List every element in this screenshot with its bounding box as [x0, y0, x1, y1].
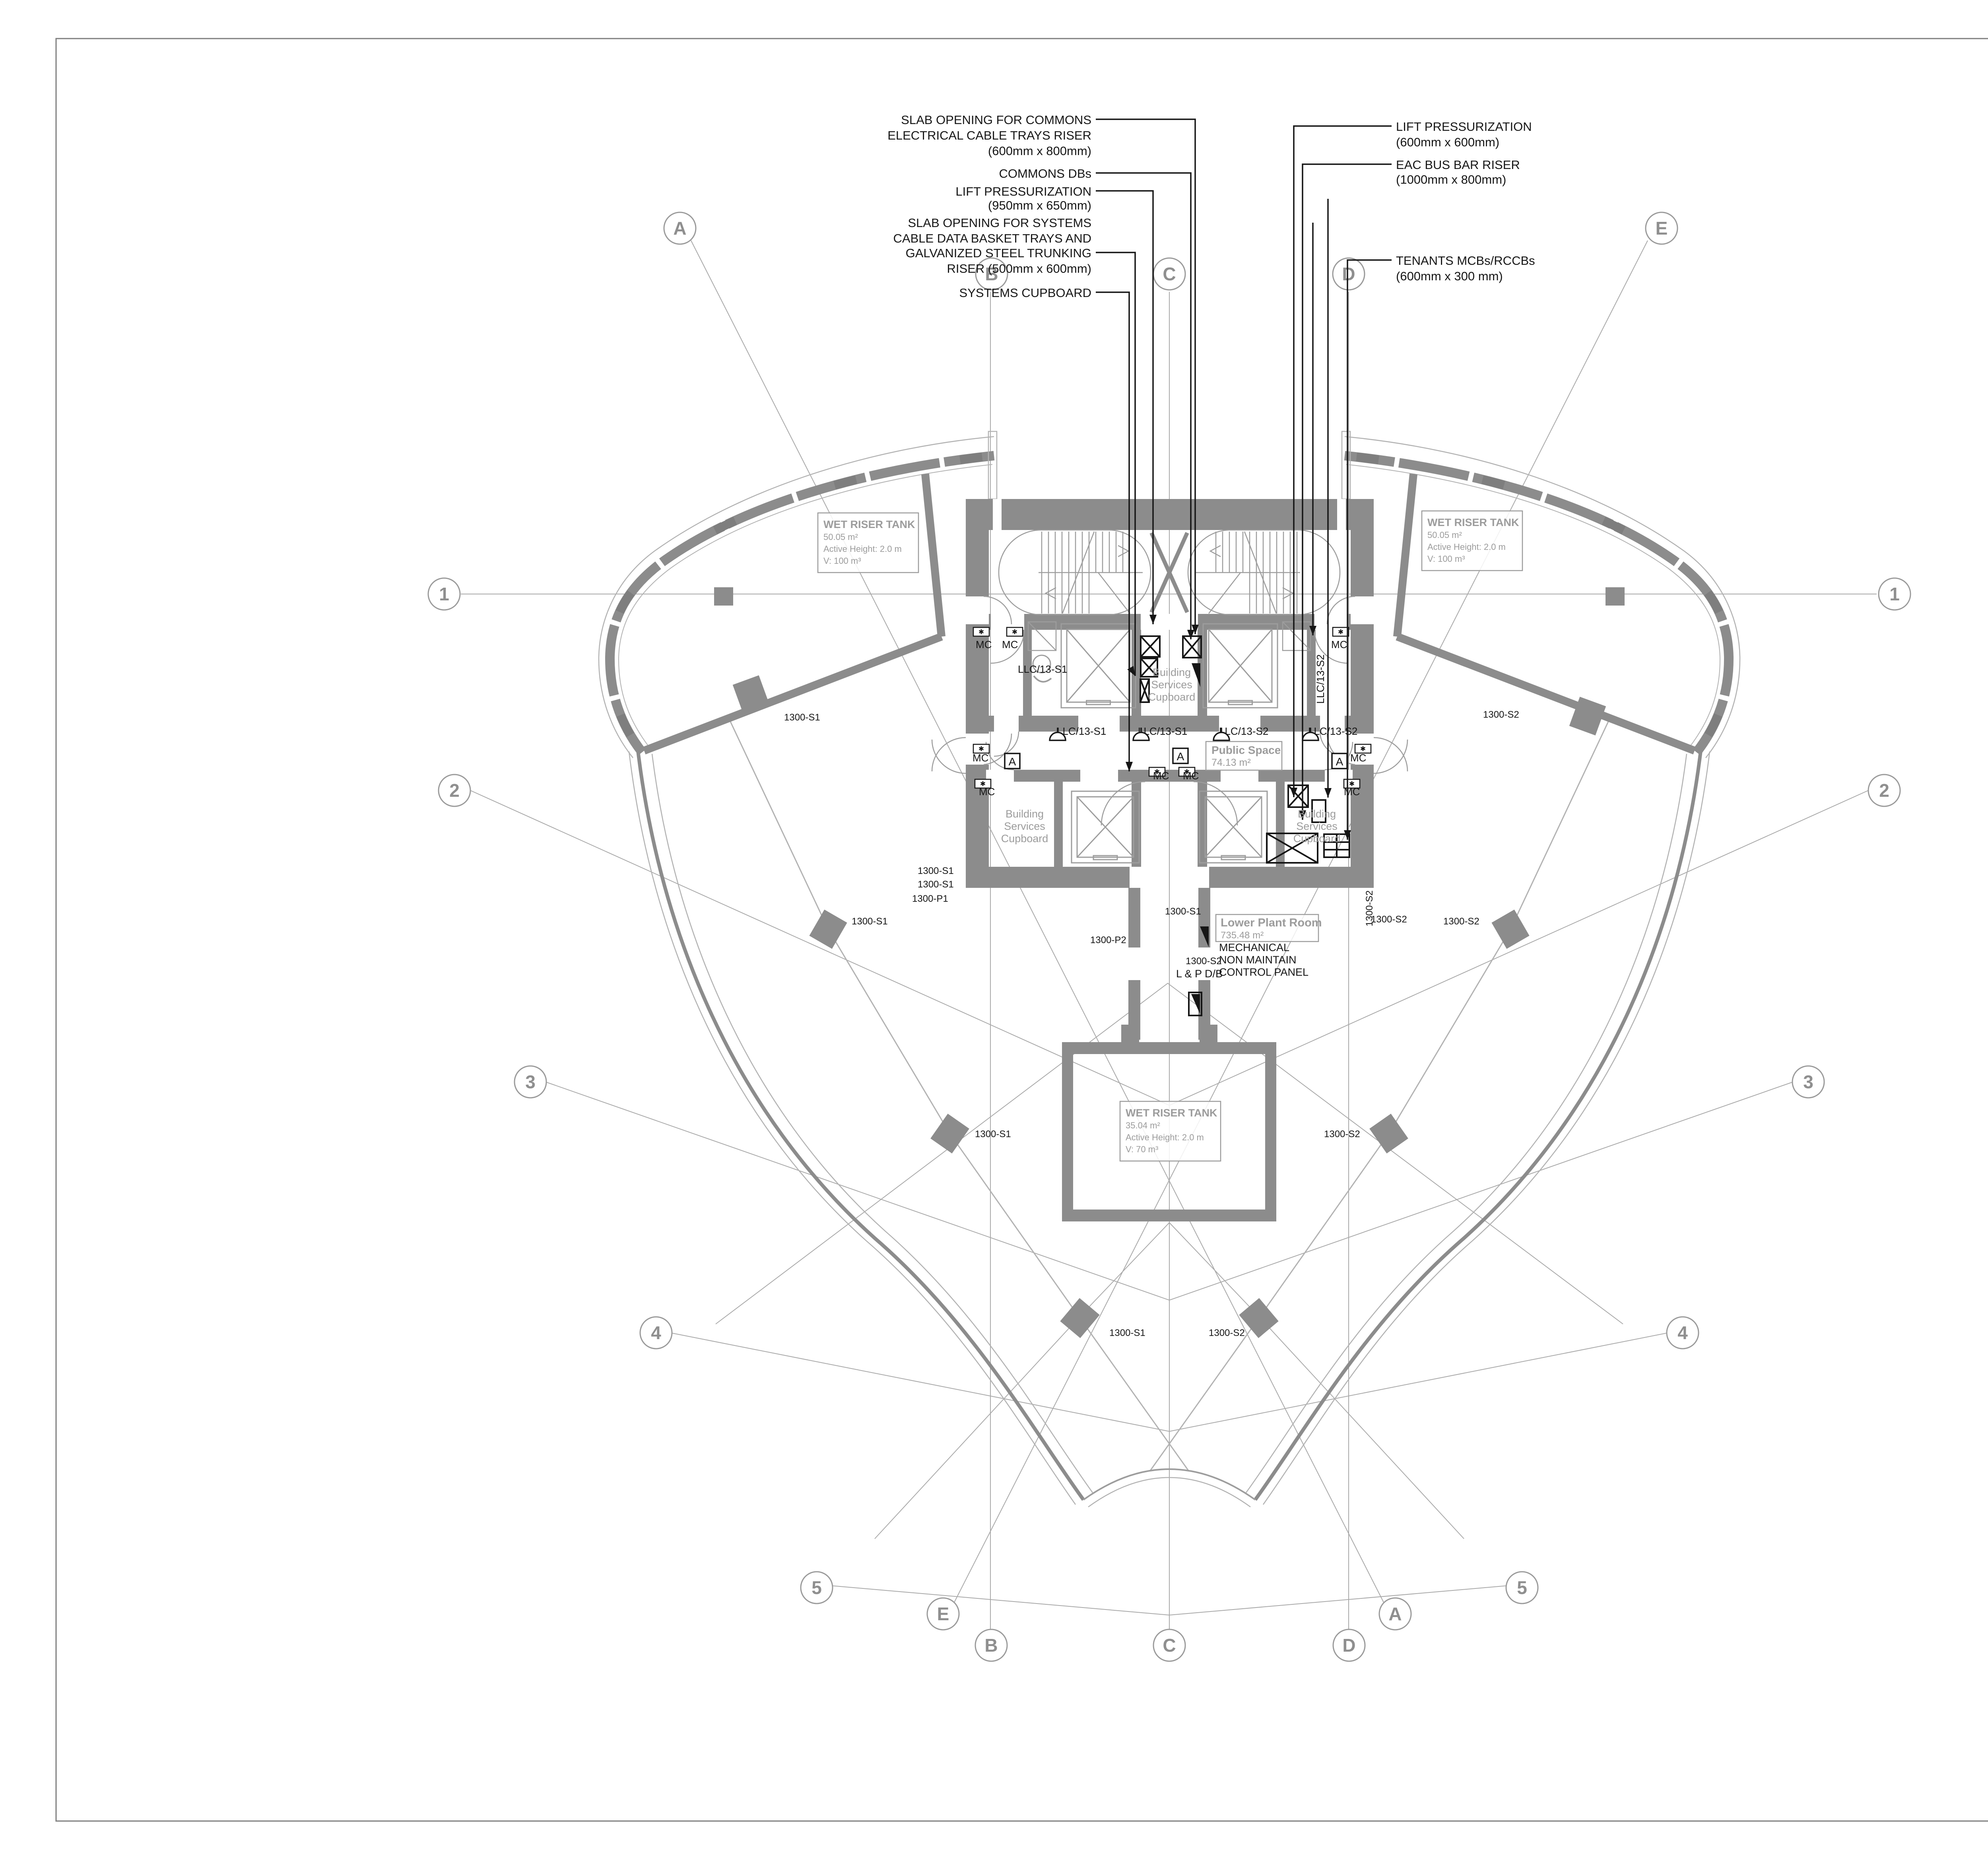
svg-text:CABLE DATA BASKET TRAYS AND: CABLE DATA BASKET TRAYS AND — [893, 231, 1091, 245]
svg-text:LLC/13-S1: LLC/13-S1 — [1018, 663, 1067, 675]
svg-text:1300-S2: 1300-S2 — [1483, 709, 1519, 720]
svg-text:1: 1 — [1889, 584, 1900, 604]
svg-text:✱: ✱ — [1012, 628, 1017, 636]
svg-text:5: 5 — [1517, 1577, 1527, 1598]
svg-text:Cupboard: Cupboard — [1148, 691, 1196, 703]
svg-text:C: C — [1163, 1635, 1176, 1656]
svg-text:1300-S1: 1300-S1 — [852, 916, 888, 927]
svg-text:1300-P2: 1300-P2 — [1090, 935, 1126, 946]
svg-text:1300-S2: 1300-S2 — [1324, 1129, 1360, 1140]
svg-text:1300-P1: 1300-P1 — [912, 893, 948, 904]
svg-text:E: E — [937, 1604, 949, 1624]
svg-text:35.04 m²: 35.04 m² — [1126, 1120, 1160, 1130]
svg-text:MC: MC — [976, 639, 992, 650]
svg-text:1300-S2: 1300-S2 — [1371, 914, 1407, 925]
svg-text:✱: ✱ — [1338, 628, 1343, 636]
svg-text:1300-S1: 1300-S1 — [918, 866, 954, 876]
svg-text:MC: MC — [1344, 786, 1360, 798]
svg-text:Building: Building — [1298, 808, 1336, 820]
svg-text:Services: Services — [1151, 679, 1192, 691]
svg-text:L & P D/B: L & P D/B — [1176, 968, 1223, 980]
svg-text:1300-S1: 1300-S1 — [784, 712, 820, 723]
svg-text:50.05 m²: 50.05 m² — [823, 532, 858, 542]
svg-text:Lower Plant Room: Lower Plant Room — [1221, 916, 1322, 929]
svg-text:50.05 m²: 50.05 m² — [1427, 530, 1462, 540]
svg-text:D: D — [1342, 1635, 1355, 1656]
svg-text:A: A — [1388, 1604, 1402, 1624]
svg-text:3: 3 — [525, 1072, 536, 1092]
svg-text:2: 2 — [449, 780, 460, 801]
svg-text:1300-S2: 1300-S2 — [1364, 890, 1375, 926]
svg-text:MC: MC — [1350, 752, 1366, 764]
svg-text:3: 3 — [1803, 1072, 1813, 1092]
svg-text:A: A — [1336, 755, 1343, 768]
svg-text:Active Height: 2.0 m: Active Height: 2.0 m — [823, 544, 902, 554]
svg-text:SYSTEMS CUPBOARD: SYSTEMS CUPBOARD — [959, 286, 1091, 300]
svg-text:WET RISER TANK: WET RISER TANK — [823, 518, 915, 530]
svg-text:Active Height: 2.0 m: Active Height: 2.0 m — [1126, 1132, 1204, 1142]
svg-text:B: B — [984, 1635, 998, 1656]
svg-text:LLC/13-S2: LLC/13-S2 — [1314, 654, 1326, 704]
svg-text:Public Space: Public Space — [1211, 744, 1281, 756]
svg-text:(600mm x 600mm): (600mm x 600mm) — [1396, 135, 1499, 149]
svg-text:1300-S2: 1300-S2 — [1443, 916, 1479, 927]
svg-text:(950mm x 650mm): (950mm x 650mm) — [988, 198, 1091, 212]
svg-text:D: D — [1342, 264, 1355, 284]
svg-text:MC: MC — [1183, 770, 1199, 782]
svg-text:LIFT PRESSURIZATION: LIFT PRESSURIZATION — [955, 184, 1091, 198]
svg-text:Cupboard: Cupboard — [1293, 833, 1341, 845]
svg-text:CONTROL PANEL: CONTROL PANEL — [1219, 966, 1309, 978]
svg-text:1300-S1: 1300-S1 — [1109, 1328, 1145, 1338]
svg-text:MECHANICAL: MECHANICAL — [1219, 942, 1289, 953]
svg-text:4: 4 — [1677, 1322, 1688, 1343]
svg-text:735.48 m²: 735.48 m² — [1221, 930, 1264, 941]
svg-text:WET RISER TANK: WET RISER TANK — [1126, 1107, 1217, 1119]
svg-text:A: A — [1009, 755, 1016, 768]
svg-text:Building: Building — [1153, 666, 1191, 678]
svg-text:A: A — [673, 218, 686, 239]
svg-text:MC: MC — [973, 752, 988, 764]
svg-text:1: 1 — [439, 584, 449, 604]
svg-text:1300-S1: 1300-S1 — [975, 1129, 1011, 1140]
svg-text:1300-S2: 1300-S2 — [1186, 956, 1222, 967]
svg-text:1300-S1: 1300-S1 — [1165, 906, 1201, 917]
svg-text:WET RISER TANK: WET RISER TANK — [1427, 516, 1519, 528]
svg-text:V: 100 m³: V: 100 m³ — [823, 556, 861, 566]
svg-text:Services: Services — [1004, 820, 1045, 832]
svg-text:MC: MC — [1002, 639, 1018, 650]
svg-text:EAC BUS BAR RISER: EAC BUS BAR RISER — [1396, 158, 1520, 172]
svg-text:Services: Services — [1296, 820, 1338, 832]
svg-text:1300-S2: 1300-S2 — [1209, 1328, 1245, 1338]
svg-text:TENANTS MCBs/RCCBs: TENANTS MCBs/RCCBs — [1396, 254, 1535, 268]
svg-text:2: 2 — [1879, 780, 1889, 801]
svg-text:✱: ✱ — [978, 628, 984, 636]
svg-text:5: 5 — [812, 1577, 822, 1598]
svg-text:A: A — [1177, 750, 1184, 763]
svg-text:MC: MC — [1331, 639, 1347, 650]
svg-text:MC: MC — [1153, 770, 1169, 782]
svg-text:(1000mm x 800mm): (1000mm x 800mm) — [1396, 173, 1506, 186]
svg-text:(600mm x 300 mm): (600mm x 300 mm) — [1396, 269, 1503, 283]
svg-text:LIFT PRESSURIZATION: LIFT PRESSURIZATION — [1396, 120, 1532, 134]
svg-text:1300-S1: 1300-S1 — [918, 879, 954, 890]
svg-text:Cupboard: Cupboard — [1001, 833, 1048, 845]
svg-text:COMMONS DBs: COMMONS DBs — [999, 167, 1092, 181]
svg-text:RISER (500mm x 600mm): RISER (500mm x 600mm) — [947, 262, 1091, 276]
svg-text:NON MAINTAIN: NON MAINTAIN — [1219, 954, 1297, 966]
svg-text:Active Height: 2.0 m: Active Height: 2.0 m — [1427, 542, 1506, 552]
svg-text:(600mm x 800mm): (600mm x 800mm) — [988, 144, 1091, 158]
svg-text:V: 100 m³: V: 100 m³ — [1427, 554, 1465, 564]
svg-text:GALVANIZED STEEL TRUNKING: GALVANIZED STEEL TRUNKING — [906, 246, 1091, 260]
svg-text:E: E — [1656, 218, 1668, 239]
svg-text:74.13 m²: 74.13 m² — [1211, 757, 1251, 768]
svg-text:MC: MC — [979, 786, 995, 798]
svg-text:ELECTRICAL CABLE TRAYS RISER: ELECTRICAL CABLE TRAYS RISER — [887, 128, 1091, 142]
svg-text:4: 4 — [651, 1322, 661, 1343]
svg-text:V: 70 m³: V: 70 m³ — [1126, 1144, 1158, 1154]
svg-text:C: C — [1163, 264, 1176, 284]
svg-text:Building: Building — [1006, 808, 1044, 820]
svg-text:SLAB OPENING FOR COMMONS: SLAB OPENING FOR COMMONS — [901, 113, 1091, 127]
svg-text:SLAB OPENING FOR SYSTEMS: SLAB OPENING FOR SYSTEMS — [908, 216, 1091, 230]
